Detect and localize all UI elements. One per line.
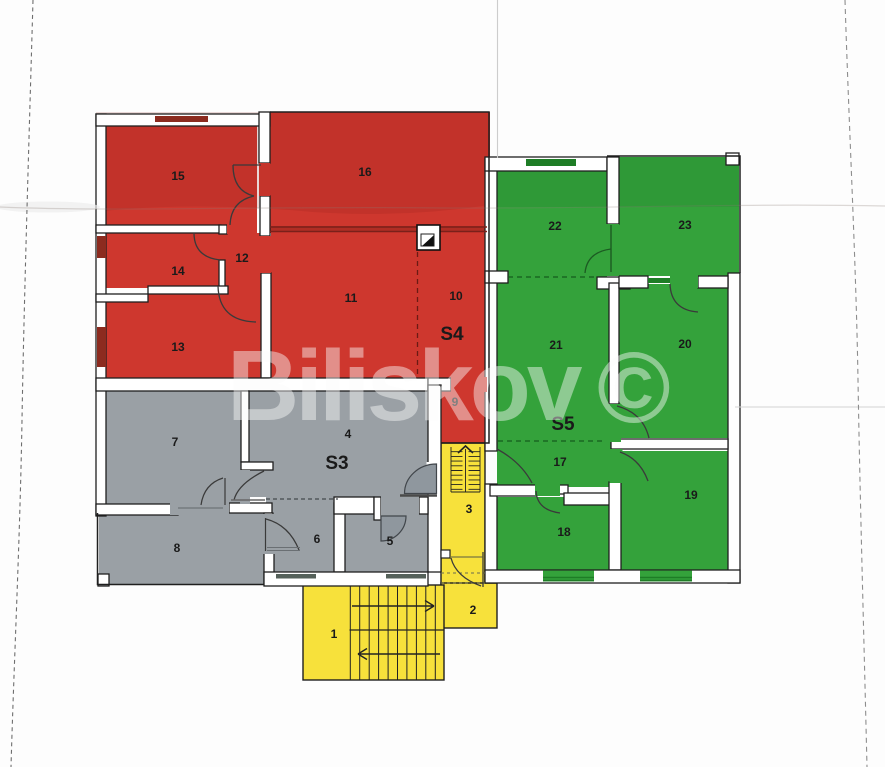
svg-text:5: 5 [387,534,394,548]
svg-text:6: 6 [314,532,321,546]
svg-text:7: 7 [172,435,179,449]
svg-text:2: 2 [470,603,477,617]
svg-text:13: 13 [171,340,185,354]
svg-text:S3: S3 [325,453,348,474]
svg-text:8: 8 [174,541,181,555]
svg-text:12: 12 [235,251,249,265]
svg-text:19: 19 [684,488,698,502]
svg-text:14: 14 [171,264,185,278]
svg-text:11: 11 [345,291,358,305]
svg-text:3: 3 [466,502,473,516]
svg-text:23: 23 [678,218,692,232]
svg-text:©: © [597,332,671,444]
svg-text:16: 16 [358,165,372,179]
svg-text:10: 10 [449,289,463,303]
svg-text:1: 1 [331,627,338,641]
svg-text:22: 22 [548,219,562,233]
svg-text:17: 17 [553,455,567,469]
svg-text:15: 15 [171,169,185,183]
svg-text:20: 20 [678,337,692,351]
svg-text:18: 18 [557,525,571,539]
svg-text:Biliskov: Biliskov [227,330,583,442]
